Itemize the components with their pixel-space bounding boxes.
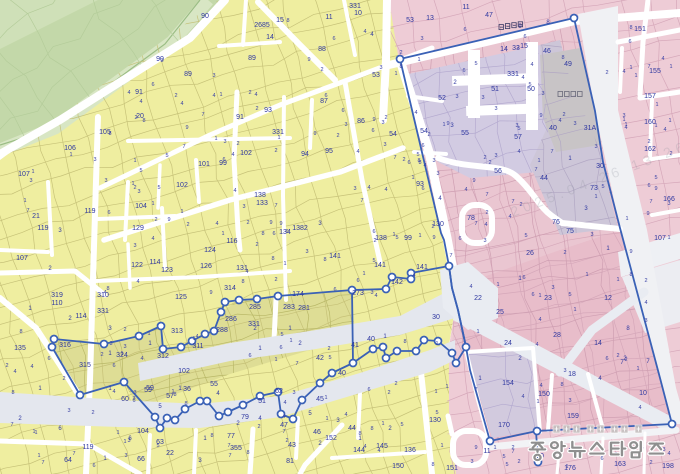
svg-text:2: 2 bbox=[431, 224, 434, 230]
svg-text:1: 1 bbox=[324, 395, 327, 401]
svg-text:6: 6 bbox=[333, 287, 336, 293]
svg-text:1: 1 bbox=[171, 389, 174, 395]
svg-text:4: 4 bbox=[521, 75, 524, 81]
svg-text:8: 8 bbox=[184, 401, 187, 407]
svg-text:119: 119 bbox=[82, 444, 93, 451]
svg-text:6: 6 bbox=[523, 34, 526, 40]
svg-text:4: 4 bbox=[469, 284, 472, 290]
svg-text:3: 3 bbox=[292, 390, 295, 396]
svg-text:8: 8 bbox=[261, 231, 264, 237]
svg-text:26: 26 bbox=[526, 250, 534, 257]
svg-text:1: 1 bbox=[496, 282, 499, 288]
svg-text:6: 6 bbox=[222, 157, 225, 163]
svg-text:6: 6 bbox=[112, 363, 115, 369]
svg-text:102: 102 bbox=[240, 150, 252, 157]
svg-text:1: 1 bbox=[219, 92, 222, 98]
svg-text:9: 9 bbox=[313, 131, 316, 137]
svg-text:4: 4 bbox=[517, 149, 520, 155]
svg-text:5: 5 bbox=[502, 454, 505, 460]
svg-text:150: 150 bbox=[538, 391, 550, 398]
svg-text:8: 8 bbox=[560, 382, 563, 388]
svg-text:4: 4 bbox=[638, 405, 641, 411]
svg-text:12: 12 bbox=[604, 295, 612, 302]
svg-text:46: 46 bbox=[543, 48, 551, 55]
svg-text:3: 3 bbox=[667, 201, 670, 207]
svg-text:7: 7 bbox=[274, 203, 277, 209]
svg-text:14: 14 bbox=[594, 340, 602, 347]
svg-text:159: 159 bbox=[567, 413, 579, 420]
svg-text:3: 3 bbox=[420, 36, 423, 42]
svg-text:99: 99 bbox=[404, 235, 412, 242]
svg-text:2: 2 bbox=[649, 460, 652, 466]
svg-text:4: 4 bbox=[484, 222, 487, 228]
svg-text:5: 5 bbox=[165, 153, 168, 159]
svg-text:62: 62 bbox=[275, 388, 283, 395]
svg-text:95: 95 bbox=[325, 148, 333, 155]
svg-text:104: 104 bbox=[135, 203, 147, 210]
svg-text:3: 3 bbox=[67, 408, 70, 414]
svg-text:44: 44 bbox=[348, 425, 356, 432]
svg-text:1: 1 bbox=[476, 329, 479, 335]
svg-text:3: 3 bbox=[483, 238, 486, 244]
svg-text:9: 9 bbox=[372, 117, 375, 123]
svg-text:3: 3 bbox=[379, 65, 382, 71]
svg-text:4: 4 bbox=[414, 110, 417, 116]
svg-text:1: 1 bbox=[625, 216, 628, 222]
svg-text:2: 2 bbox=[563, 250, 566, 256]
svg-text:51: 51 bbox=[491, 86, 499, 93]
svg-text:2: 2 bbox=[285, 438, 288, 444]
svg-text:6: 6 bbox=[47, 356, 50, 362]
svg-text:4: 4 bbox=[30, 364, 33, 370]
svg-text:4: 4 bbox=[464, 187, 467, 193]
svg-text:2: 2 bbox=[387, 390, 390, 396]
svg-text:6: 6 bbox=[324, 93, 327, 99]
svg-text:9: 9 bbox=[629, 249, 632, 255]
svg-text:1: 1 bbox=[214, 136, 217, 142]
svg-text:3: 3 bbox=[494, 153, 497, 159]
svg-text:22: 22 bbox=[474, 295, 482, 302]
svg-text:1: 1 bbox=[32, 429, 35, 435]
svg-text:1382: 1382 bbox=[292, 225, 308, 232]
svg-text:123: 123 bbox=[161, 267, 173, 274]
svg-text:11: 11 bbox=[462, 4, 469, 11]
svg-text:1: 1 bbox=[221, 231, 224, 237]
svg-text:1: 1 bbox=[23, 198, 26, 204]
svg-text:1: 1 bbox=[37, 453, 40, 459]
svg-text:4: 4 bbox=[139, 99, 142, 105]
svg-text:4: 4 bbox=[233, 188, 236, 194]
svg-text:6: 6 bbox=[458, 236, 461, 242]
svg-text:313: 313 bbox=[171, 328, 183, 335]
svg-text:42: 42 bbox=[316, 355, 324, 362]
svg-text:136: 136 bbox=[404, 447, 416, 454]
svg-text:49: 49 bbox=[564, 61, 572, 68]
svg-text:1: 1 bbox=[565, 464, 568, 470]
svg-text:2: 2 bbox=[62, 376, 65, 382]
svg-text:2: 2 bbox=[248, 90, 251, 96]
svg-text:2: 2 bbox=[616, 353, 619, 359]
svg-text:7: 7 bbox=[182, 144, 185, 150]
svg-text:2: 2 bbox=[427, 132, 430, 138]
svg-text:9: 9 bbox=[446, 121, 449, 127]
svg-text:125: 125 bbox=[175, 294, 187, 301]
svg-text:7: 7 bbox=[201, 112, 204, 118]
svg-text:2: 2 bbox=[488, 160, 491, 166]
svg-text:41: 41 bbox=[351, 342, 359, 349]
svg-text:3: 3 bbox=[644, 318, 647, 324]
svg-text:36: 36 bbox=[183, 386, 191, 393]
svg-text:4: 4 bbox=[508, 214, 511, 220]
svg-text:1: 1 bbox=[274, 357, 277, 363]
svg-text:40: 40 bbox=[338, 370, 346, 377]
svg-text:2: 2 bbox=[399, 50, 402, 56]
svg-text:2: 2 bbox=[517, 459, 520, 465]
svg-text:8: 8 bbox=[241, 279, 244, 285]
svg-text:7: 7 bbox=[72, 451, 75, 457]
svg-text:1: 1 bbox=[417, 57, 420, 63]
svg-text:53: 53 bbox=[372, 72, 380, 79]
svg-text:2: 2 bbox=[154, 217, 157, 223]
svg-text:4: 4 bbox=[103, 290, 106, 296]
svg-text:76: 76 bbox=[552, 219, 560, 226]
svg-text:3: 3 bbox=[137, 189, 140, 195]
svg-text:141: 141 bbox=[329, 253, 341, 260]
svg-text:9: 9 bbox=[307, 57, 310, 63]
svg-text:53: 53 bbox=[406, 17, 414, 24]
svg-text:107: 107 bbox=[654, 235, 666, 242]
svg-text:5: 5 bbox=[395, 235, 398, 241]
svg-text:9: 9 bbox=[269, 220, 272, 226]
svg-text:8: 8 bbox=[403, 339, 406, 345]
svg-text:6: 6 bbox=[421, 143, 424, 149]
svg-text:3: 3 bbox=[127, 438, 130, 444]
svg-text:3: 3 bbox=[212, 73, 215, 79]
svg-text:8: 8 bbox=[286, 18, 289, 24]
svg-text:3: 3 bbox=[432, 158, 435, 164]
svg-text:1: 1 bbox=[636, 366, 639, 372]
svg-text:126: 126 bbox=[200, 263, 212, 270]
svg-text:10: 10 bbox=[639, 390, 647, 397]
svg-text:3: 3 bbox=[436, 171, 439, 177]
svg-text:2: 2 bbox=[255, 106, 258, 112]
svg-text:3: 3 bbox=[353, 186, 356, 192]
svg-text:14: 14 bbox=[266, 34, 274, 41]
svg-text:77: 77 bbox=[227, 433, 235, 440]
svg-text:3: 3 bbox=[455, 94, 458, 100]
svg-text:6: 6 bbox=[132, 398, 135, 404]
svg-text:4: 4 bbox=[282, 414, 285, 420]
svg-text:2: 2 bbox=[274, 148, 277, 154]
svg-text:2: 2 bbox=[384, 115, 387, 121]
svg-text:9: 9 bbox=[472, 178, 475, 184]
svg-text:5: 5 bbox=[654, 175, 657, 181]
svg-text:8: 8 bbox=[246, 450, 249, 456]
svg-text:7: 7 bbox=[649, 199, 652, 205]
svg-text:6: 6 bbox=[531, 292, 534, 298]
svg-text:66: 66 bbox=[137, 456, 145, 463]
svg-text:5: 5 bbox=[328, 355, 331, 361]
svg-text:152: 152 bbox=[325, 435, 337, 442]
svg-text:7: 7 bbox=[647, 64, 650, 70]
svg-text:6: 6 bbox=[356, 278, 359, 284]
svg-text:55: 55 bbox=[210, 381, 218, 388]
svg-text:88: 88 bbox=[318, 46, 326, 53]
svg-text:5: 5 bbox=[435, 410, 438, 416]
svg-text:51: 51 bbox=[258, 398, 266, 405]
svg-text:283: 283 bbox=[283, 304, 295, 311]
svg-text:163: 163 bbox=[614, 461, 626, 468]
svg-text:24: 24 bbox=[504, 340, 512, 347]
svg-text:1: 1 bbox=[445, 384, 448, 390]
svg-text:1: 1 bbox=[116, 430, 119, 436]
svg-text:1: 1 bbox=[654, 123, 657, 129]
svg-text:4: 4 bbox=[558, 118, 561, 124]
svg-text:3: 3 bbox=[494, 106, 497, 112]
svg-text:7: 7 bbox=[228, 453, 231, 459]
svg-text:7: 7 bbox=[360, 198, 363, 204]
svg-text:1: 1 bbox=[667, 235, 670, 241]
svg-text:4: 4 bbox=[245, 269, 248, 275]
svg-text:4: 4 bbox=[535, 342, 538, 348]
svg-text:3: 3 bbox=[109, 341, 112, 347]
svg-text:2: 2 bbox=[174, 93, 177, 99]
svg-text:2: 2 bbox=[255, 242, 258, 248]
svg-text:8: 8 bbox=[323, 257, 326, 263]
svg-text:138: 138 bbox=[254, 192, 266, 199]
svg-text:40: 40 bbox=[367, 336, 375, 343]
svg-text:3: 3 bbox=[594, 144, 597, 150]
svg-text:45: 45 bbox=[316, 396, 324, 403]
svg-text:6: 6 bbox=[272, 231, 275, 237]
svg-text:130: 130 bbox=[429, 417, 441, 424]
svg-text:7: 7 bbox=[393, 155, 396, 161]
svg-text:81: 81 bbox=[286, 458, 294, 465]
svg-text:8: 8 bbox=[358, 431, 361, 437]
svg-text:9: 9 bbox=[539, 113, 542, 119]
svg-text:5: 5 bbox=[474, 61, 477, 67]
svg-text:7: 7 bbox=[41, 460, 44, 466]
svg-text:198: 198 bbox=[662, 463, 674, 470]
svg-text:4: 4 bbox=[136, 279, 139, 285]
svg-text:104: 104 bbox=[137, 428, 149, 435]
svg-text:133: 133 bbox=[256, 200, 268, 207]
svg-text:8: 8 bbox=[561, 55, 564, 61]
svg-text:1: 1 bbox=[277, 135, 280, 141]
svg-text:3: 3 bbox=[305, 249, 308, 255]
svg-text:141: 141 bbox=[416, 264, 428, 271]
svg-text:4: 4 bbox=[521, 394, 524, 400]
svg-text:7: 7 bbox=[295, 361, 298, 367]
svg-text:2: 2 bbox=[394, 381, 397, 387]
svg-text:6: 6 bbox=[92, 463, 95, 469]
svg-text:6: 6 bbox=[522, 275, 525, 281]
svg-text:3: 3 bbox=[160, 58, 163, 64]
svg-text:1: 1 bbox=[573, 307, 576, 313]
svg-text:1: 1 bbox=[418, 233, 421, 239]
svg-text:3: 3 bbox=[123, 344, 126, 350]
svg-text:151: 151 bbox=[446, 465, 458, 472]
svg-text:18: 18 bbox=[568, 371, 576, 378]
svg-text:138: 138 bbox=[375, 235, 387, 242]
svg-text:5: 5 bbox=[528, 82, 531, 88]
svg-text:5: 5 bbox=[139, 168, 142, 174]
svg-text:1: 1 bbox=[69, 152, 72, 158]
svg-text:90: 90 bbox=[201, 13, 209, 20]
svg-text:75: 75 bbox=[566, 228, 574, 235]
svg-text:2: 2 bbox=[605, 70, 608, 76]
svg-text:5: 5 bbox=[156, 443, 159, 449]
svg-text:124: 124 bbox=[204, 247, 216, 254]
svg-text:1: 1 bbox=[538, 293, 541, 299]
svg-text:1: 1 bbox=[381, 421, 384, 427]
svg-text:8: 8 bbox=[106, 286, 109, 292]
svg-text:1: 1 bbox=[411, 175, 414, 181]
svg-text:1: 1 bbox=[362, 271, 365, 277]
svg-text:8: 8 bbox=[629, 272, 632, 278]
svg-text:1: 1 bbox=[325, 416, 328, 422]
svg-text:4: 4 bbox=[539, 383, 542, 389]
svg-text:8: 8 bbox=[431, 462, 434, 468]
svg-text:4: 4 bbox=[412, 273, 415, 279]
svg-text:4: 4 bbox=[195, 334, 198, 340]
svg-text:1: 1 bbox=[131, 181, 134, 187]
svg-text:3: 3 bbox=[223, 139, 226, 145]
svg-text:331: 331 bbox=[507, 71, 519, 78]
svg-text:3: 3 bbox=[133, 390, 136, 396]
svg-text:2: 2 bbox=[647, 139, 650, 145]
svg-text:4: 4 bbox=[622, 69, 625, 75]
svg-text:1: 1 bbox=[435, 341, 438, 347]
svg-text:6: 6 bbox=[647, 183, 650, 189]
svg-text:6: 6 bbox=[628, 39, 631, 45]
svg-text:281: 281 bbox=[298, 305, 310, 312]
svg-text:1: 1 bbox=[669, 64, 672, 70]
svg-text:106: 106 bbox=[64, 145, 76, 152]
svg-text:4: 4 bbox=[212, 93, 215, 99]
svg-text:23: 23 bbox=[544, 295, 552, 302]
svg-text:107: 107 bbox=[16, 255, 28, 262]
svg-text:114: 114 bbox=[149, 259, 160, 266]
svg-text:101: 101 bbox=[198, 161, 210, 168]
svg-text:3: 3 bbox=[133, 243, 136, 249]
svg-text:30: 30 bbox=[432, 314, 440, 321]
svg-text:7: 7 bbox=[449, 253, 452, 259]
svg-text:2: 2 bbox=[336, 133, 339, 139]
svg-text:9: 9 bbox=[279, 221, 282, 227]
svg-text:31A: 31A bbox=[584, 125, 597, 132]
svg-text:6: 6 bbox=[600, 456, 603, 462]
svg-text:64: 64 bbox=[64, 457, 72, 464]
svg-text:40: 40 bbox=[549, 125, 557, 132]
svg-text:311: 311 bbox=[192, 343, 203, 350]
svg-text:2: 2 bbox=[134, 115, 137, 121]
svg-text:6: 6 bbox=[367, 387, 370, 393]
svg-text:9: 9 bbox=[167, 217, 170, 223]
svg-text:8: 8 bbox=[210, 433, 213, 439]
svg-text:286: 286 bbox=[225, 316, 237, 323]
svg-text:314: 314 bbox=[224, 285, 236, 292]
svg-text:4: 4 bbox=[384, 187, 387, 193]
svg-text:1: 1 bbox=[629, 65, 632, 71]
svg-text:3: 3 bbox=[551, 285, 554, 291]
svg-text:2: 2 bbox=[186, 222, 189, 228]
svg-text:1: 1 bbox=[394, 71, 397, 77]
svg-text:2: 2 bbox=[402, 157, 405, 163]
svg-text:7: 7 bbox=[485, 192, 488, 198]
svg-text:3: 3 bbox=[344, 122, 347, 128]
svg-text:7: 7 bbox=[474, 387, 477, 393]
svg-text:52: 52 bbox=[438, 95, 446, 102]
svg-text:1: 1 bbox=[434, 389, 437, 395]
svg-text:4: 4 bbox=[377, 448, 380, 454]
svg-text:174: 174 bbox=[292, 291, 304, 298]
svg-text:1: 1 bbox=[180, 209, 183, 215]
svg-text:4: 4 bbox=[374, 293, 377, 299]
svg-text:1: 1 bbox=[440, 443, 443, 449]
svg-text:4: 4 bbox=[423, 163, 426, 169]
svg-text:102: 102 bbox=[178, 368, 190, 375]
svg-text:8: 8 bbox=[271, 256, 274, 262]
svg-text:4: 4 bbox=[538, 317, 541, 323]
svg-text:59: 59 bbox=[146, 385, 154, 392]
svg-text:4: 4 bbox=[127, 90, 130, 96]
svg-text:4: 4 bbox=[215, 221, 218, 227]
svg-text:1: 1 bbox=[585, 272, 588, 278]
svg-text:3: 3 bbox=[29, 178, 32, 184]
svg-text:3: 3 bbox=[370, 290, 373, 296]
svg-text:6: 6 bbox=[248, 353, 251, 359]
svg-text:150: 150 bbox=[392, 463, 404, 470]
svg-text:107: 107 bbox=[18, 171, 30, 178]
svg-text:21: 21 bbox=[32, 213, 40, 220]
svg-text:2: 2 bbox=[5, 363, 8, 369]
svg-text:8: 8 bbox=[142, 118, 145, 124]
svg-text:154: 154 bbox=[502, 380, 514, 387]
svg-text:4: 4 bbox=[283, 400, 286, 406]
svg-text:15: 15 bbox=[276, 17, 284, 24]
svg-text:43: 43 bbox=[288, 442, 296, 449]
svg-text:157: 157 bbox=[644, 93, 656, 100]
svg-text:3: 3 bbox=[541, 91, 544, 97]
svg-text:91: 91 bbox=[236, 114, 244, 121]
svg-text:2: 2 bbox=[562, 112, 565, 118]
svg-text:89: 89 bbox=[184, 71, 192, 78]
svg-text:3: 3 bbox=[590, 232, 593, 238]
svg-text:14: 14 bbox=[500, 46, 508, 53]
svg-text:87: 87 bbox=[320, 98, 328, 105]
svg-text:355: 355 bbox=[230, 445, 242, 452]
svg-text:9: 9 bbox=[432, 235, 435, 241]
svg-text:2: 2 bbox=[236, 141, 239, 147]
svg-text:331: 331 bbox=[349, 3, 361, 10]
svg-text:119: 119 bbox=[37, 225, 48, 232]
svg-text:1: 1 bbox=[493, 445, 496, 451]
svg-text:1: 1 bbox=[120, 351, 123, 357]
svg-text:56: 56 bbox=[494, 168, 502, 175]
svg-text:116: 116 bbox=[226, 238, 237, 245]
svg-text:2685: 2685 bbox=[254, 22, 270, 29]
svg-text:5: 5 bbox=[280, 332, 283, 338]
svg-text:4: 4 bbox=[254, 92, 257, 98]
svg-text:6: 6 bbox=[462, 68, 465, 74]
svg-text:1: 1 bbox=[616, 277, 619, 283]
svg-text:47: 47 bbox=[280, 422, 288, 429]
svg-text:3: 3 bbox=[124, 453, 127, 459]
svg-text:7: 7 bbox=[282, 429, 285, 435]
svg-text:119: 119 bbox=[84, 208, 95, 215]
svg-text:1: 1 bbox=[594, 194, 597, 200]
